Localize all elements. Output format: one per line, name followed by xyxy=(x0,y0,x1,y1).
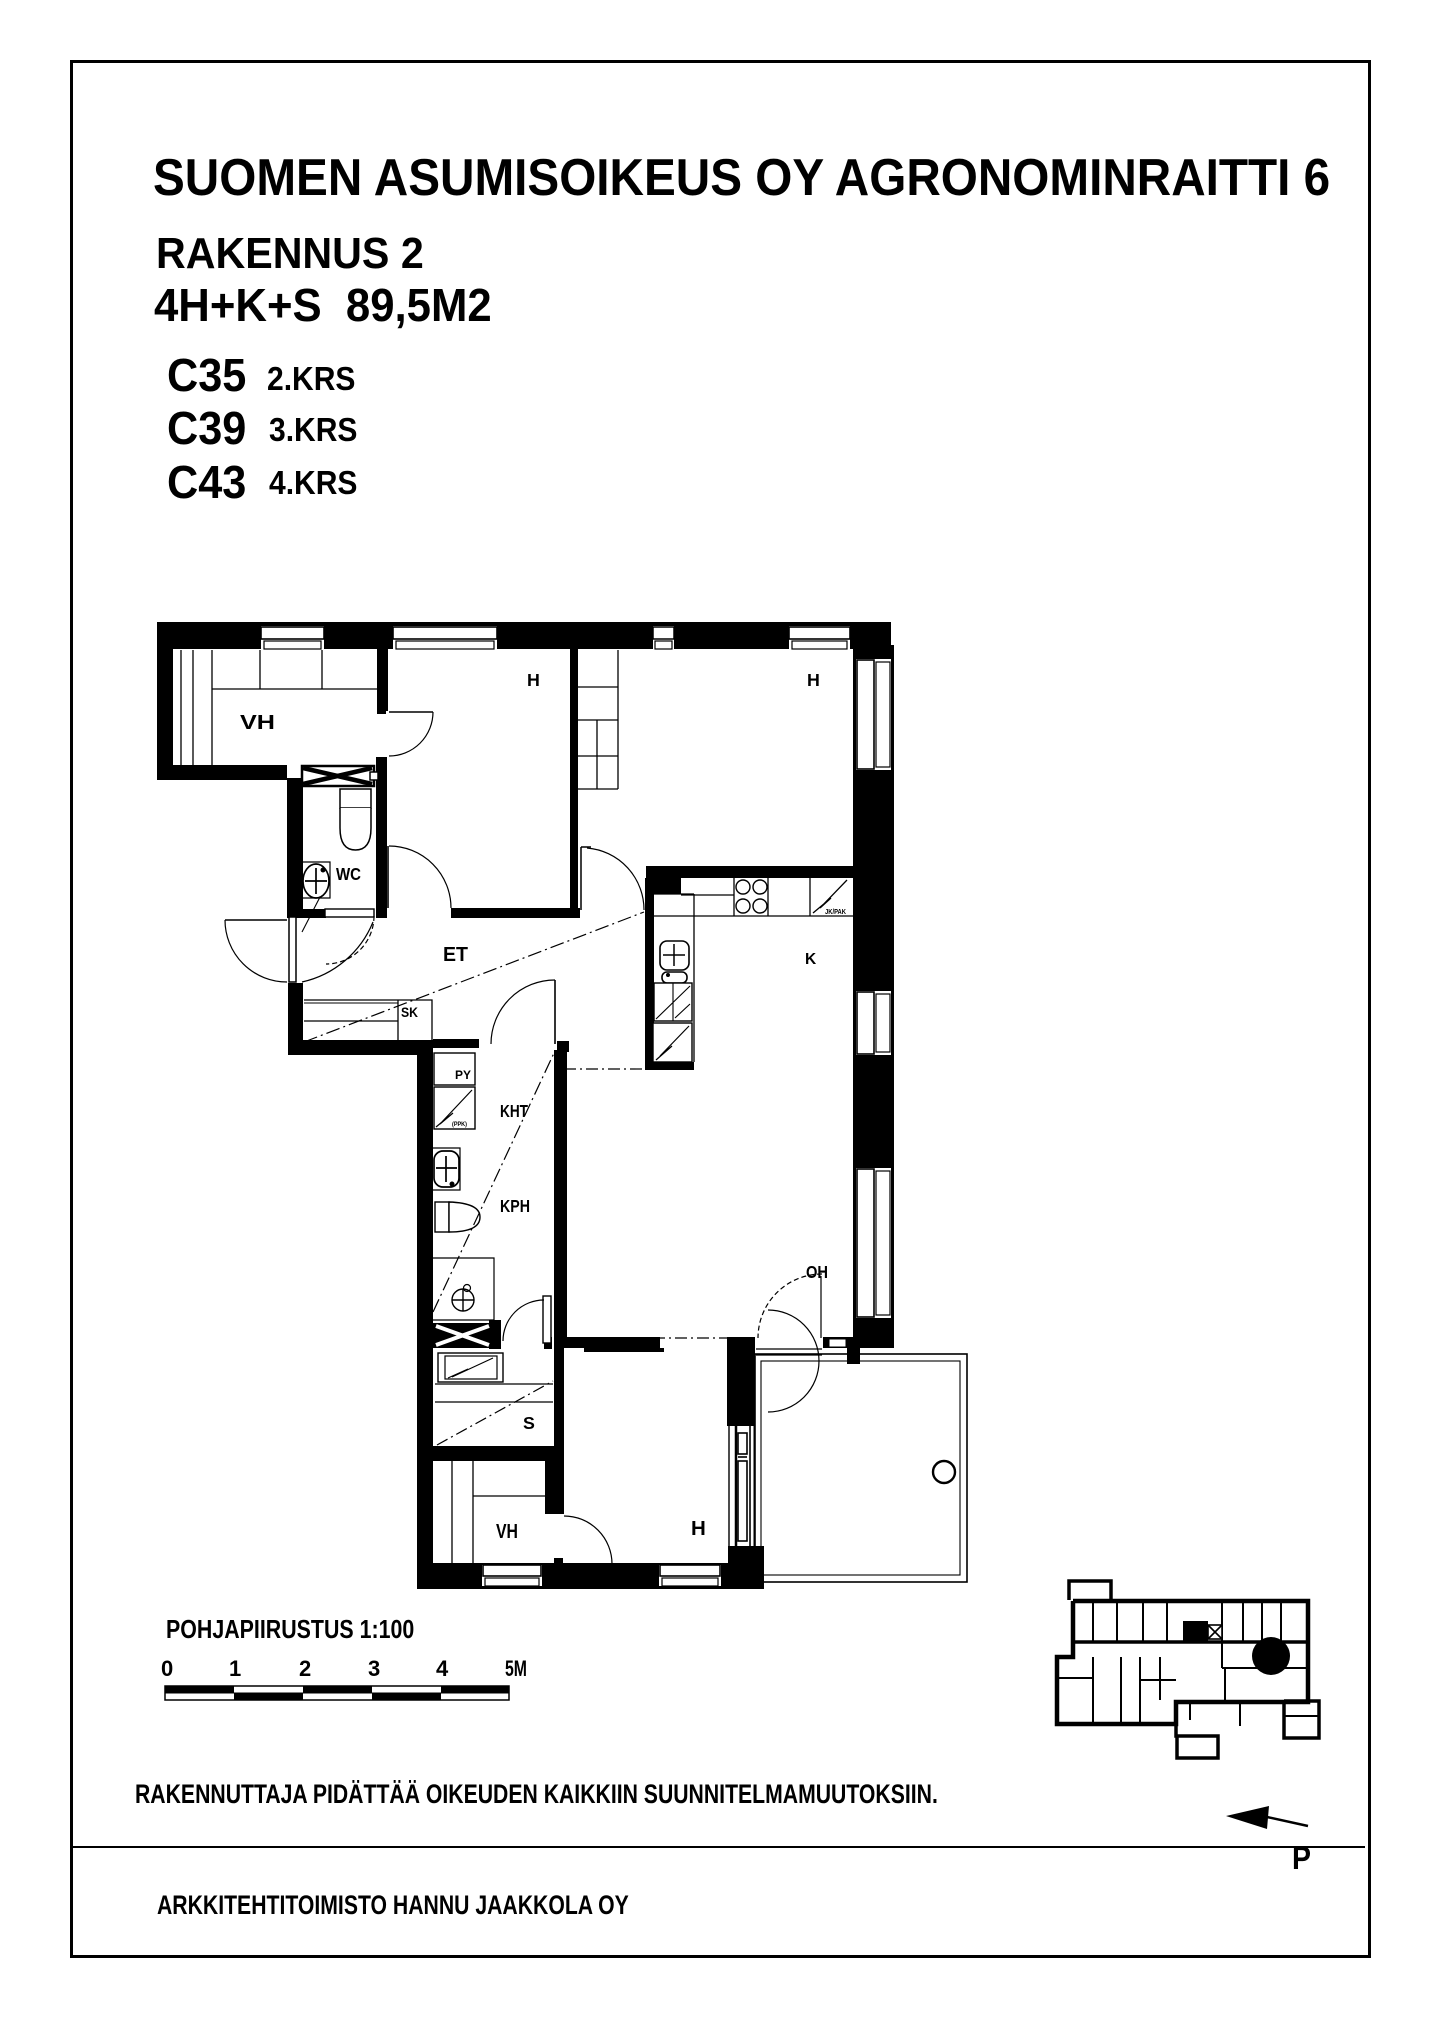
svg-text:(PPK): (PPK) xyxy=(452,1121,467,1128)
svg-text:VH: VH xyxy=(496,1521,518,1543)
svg-text:ET: ET xyxy=(443,943,468,966)
svg-text:H: H xyxy=(527,670,540,690)
svg-text:PY: PY xyxy=(455,1068,471,1082)
svg-text:VH: VH xyxy=(240,711,275,734)
svg-text:1: 1 xyxy=(229,1656,241,1681)
svg-text:K: K xyxy=(805,951,817,968)
svg-text:JK/PAK: JK/PAK xyxy=(825,909,846,916)
svg-text:H: H xyxy=(807,670,820,690)
svg-text:P: P xyxy=(1292,1840,1311,1876)
svg-text:3: 3 xyxy=(368,1656,380,1681)
svg-text:5M: 5M xyxy=(505,1656,527,1681)
svg-text:H: H xyxy=(691,1517,706,1540)
svg-text:0: 0 xyxy=(161,1656,173,1681)
svg-text:WC: WC xyxy=(336,864,361,884)
svg-text:KHT: KHT xyxy=(500,1101,528,1121)
svg-text:KPH: KPH xyxy=(500,1196,530,1216)
svg-text:SK: SK xyxy=(401,1005,418,1020)
svg-text:S: S xyxy=(523,1413,535,1433)
svg-text:OH: OH xyxy=(806,1262,828,1282)
svg-text:4: 4 xyxy=(436,1656,449,1681)
svg-text:2: 2 xyxy=(299,1656,311,1681)
